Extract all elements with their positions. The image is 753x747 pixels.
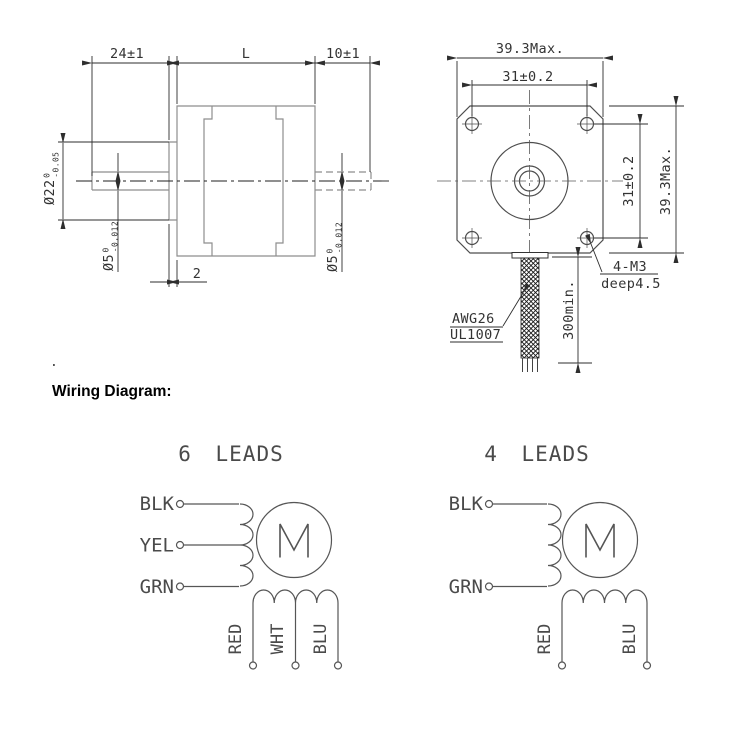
svg-text:Ø50-0.012: Ø50-0.012 — [101, 221, 120, 271]
six-leads-motor-symbol — [257, 503, 332, 578]
coil-phase-b-6lead — [253, 590, 338, 603]
four-leads-phase-b: RED BLU — [535, 590, 651, 669]
lead-label-red-4: RED — [535, 624, 555, 655]
lead-label-blk: BLK — [140, 493, 175, 515]
svg-text:Ø50-0.012: Ø50-0.012 — [325, 222, 344, 272]
terminal-grn — [177, 583, 184, 590]
dim-rear-length: 10±1 — [326, 46, 360, 62]
four-leads-title: 4 LEADS — [484, 442, 590, 466]
terminal-wht — [292, 662, 299, 669]
svg-text:300min.: 300min. — [561, 280, 577, 340]
dim-hole-spacing-vertical: 31±0.2 — [621, 155, 637, 206]
terminal-blu-4 — [644, 662, 651, 669]
coil-phase-b-4lead — [562, 590, 647, 603]
dim-boss-depth: 2 — [193, 266, 202, 282]
terminal-blk — [177, 501, 184, 508]
side-view-dimensions: 24±1 L 10±1 Ø220-0.05 Ø50-0.012 — [42, 46, 370, 287]
lead-wires — [523, 358, 538, 372]
holes-thread-note: 4-M3 — [613, 259, 647, 275]
terminal-blk-4 — [486, 501, 493, 508]
six-leads-phase-b: RED WHT BLU — [226, 590, 342, 669]
lead-label-blu-4: BLU — [620, 624, 640, 655]
stray-dot: . — [50, 355, 58, 370]
four-leads-diagram: 4 LEADS BLK GRN RED BLU — [449, 442, 651, 669]
drawing-canvas: 24±1 L 10±1 Ø220-0.05 Ø50-0.012 — [0, 0, 753, 747]
dim-front-shaft-diameter: Ø50-0.012 — [101, 221, 120, 271]
lead-label-blk-4: BLK — [449, 493, 484, 515]
terminal-red-4 — [559, 662, 566, 669]
terminal-blu — [335, 662, 342, 669]
front-view-dimensions: 39.3Max. 31±0.2 31±0.2 39.3Max. 4-M3 dee… — [450, 41, 684, 363]
dim-boss-diameter: Ø220-0.05 — [42, 152, 61, 205]
cable — [512, 253, 548, 373]
motor-letter-m — [280, 524, 308, 558]
terminal-grn-4 — [486, 583, 493, 590]
dim-flange-height: 39.3Max. — [658, 147, 674, 215]
lead-label-grn-4: GRN — [449, 576, 483, 598]
lead-label-wht: WHT — [268, 624, 288, 655]
cable-gauge-note: AWG26 — [452, 311, 495, 327]
motor-circle-4 — [563, 503, 638, 578]
svg-text:Ø220-0.05: Ø220-0.05 — [42, 152, 61, 205]
wiring-diagram-heading: Wiring Diagram: — [52, 383, 172, 400]
dim-lead-length: 300min. — [561, 280, 577, 340]
motor-letter-m-4 — [586, 524, 614, 558]
terminal-red — [250, 662, 257, 669]
lead-label-red: RED — [226, 624, 246, 655]
four-leads-motor-symbol — [563, 503, 638, 578]
dim-front-length: 24±1 — [110, 46, 144, 62]
six-leads-title: 6 LEADS — [178, 442, 284, 466]
lead-label-blu: BLU — [311, 624, 331, 655]
dim-rear-shaft-diameter: Ø50-0.012 — [325, 222, 344, 272]
holes-depth-note: deep4.5 — [601, 276, 661, 292]
dim-body-length: L — [242, 46, 251, 62]
lead-label-yel: YEL — [140, 535, 174, 557]
coil-phase-a-6lead — [240, 504, 253, 586]
motor-circle — [257, 503, 332, 578]
svg-text:39.3Max.: 39.3Max. — [658, 147, 674, 215]
dim-flange-width: 39.3Max. — [496, 41, 564, 57]
flange-outline — [457, 106, 603, 253]
terminal-yel — [177, 542, 184, 549]
svg-text:31±0.2: 31±0.2 — [621, 155, 637, 206]
lead-label-grn: GRN — [140, 576, 174, 598]
coil-phase-a-4lead — [548, 504, 561, 586]
motor-drawing-page: 24±1 L 10±1 Ø220-0.05 Ø50-0.012 — [0, 0, 753, 747]
side-view: 24±1 L 10±1 Ø220-0.05 Ø50-0.012 — [42, 46, 392, 287]
six-leads-diagram: 6 LEADS BLK YEL GRN RED WHT BLU — [140, 442, 342, 669]
front-view: 39.3Max. 31±0.2 31±0.2 39.3Max. 4-M3 dee… — [437, 41, 684, 372]
dim-hole-spacing-horizontal: 31±0.2 — [502, 69, 553, 85]
four-leads-phase-a: BLK GRN — [449, 493, 561, 598]
six-leads-phase-a: BLK YEL GRN — [140, 493, 253, 598]
cable-spec-note: UL1007 — [450, 327, 501, 343]
front-centerlines — [437, 90, 623, 256]
